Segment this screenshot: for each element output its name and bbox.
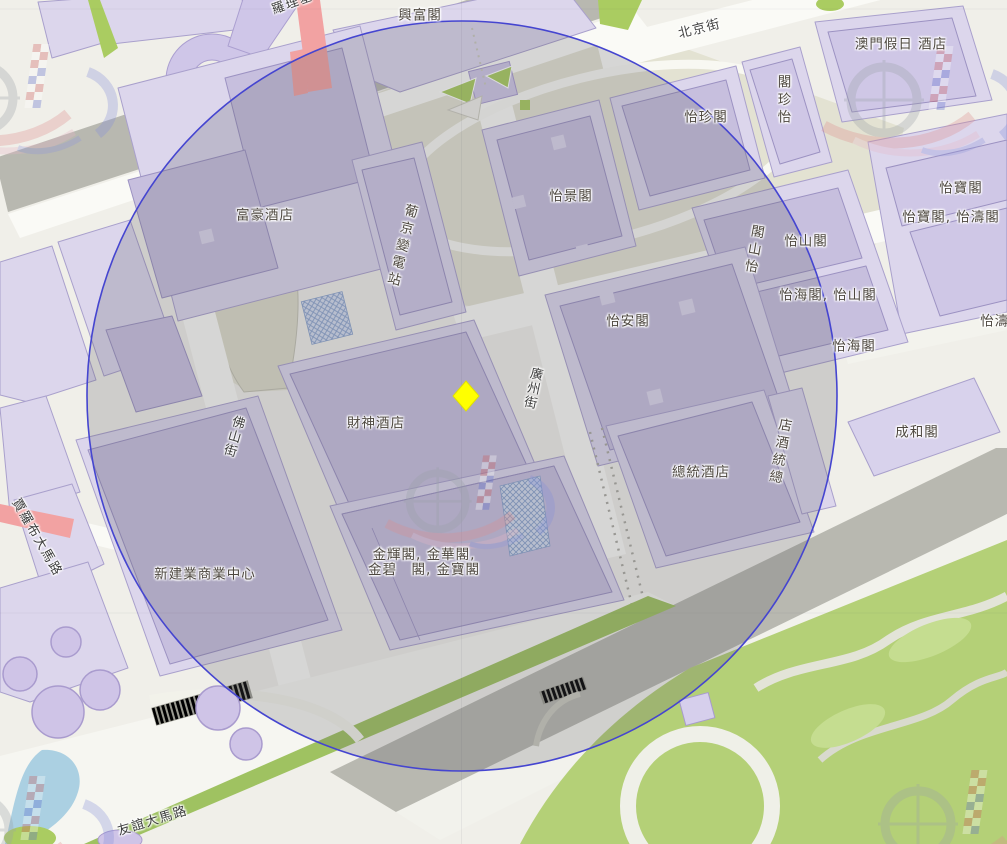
map-canvas[interactable]: 興富閣 北京街 澳門假日 酒店 怡珍閣 閣珍怡 富豪酒店 葡京變電站 怡景閣 怡… — [0, 0, 1007, 844]
base-map — [0, 0, 1007, 844]
